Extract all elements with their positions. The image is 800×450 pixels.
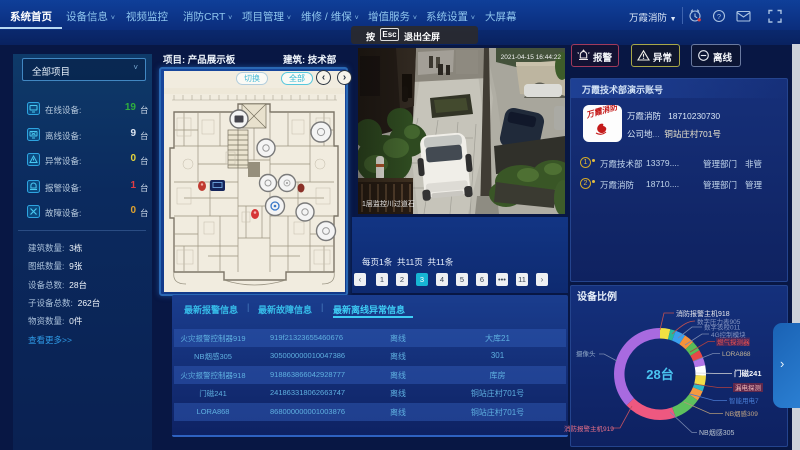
svg-text:?: ? (717, 12, 721, 21)
svg-text:摄像头: 摄像头 (576, 349, 596, 358)
svg-text:智能用电7: 智能用电7 (729, 396, 759, 405)
svg-text:漏电探测: 漏电探测 (735, 383, 762, 392)
svg-text:消防报警主机918: 消防报警主机918 (676, 309, 730, 318)
svg-text:2021-04-15 16:44:22: 2021-04-15 16:44:22 (501, 54, 562, 61)
svg-text:1层监控川过道石: 1层监控川过道石 (362, 199, 415, 208)
svg-text:燃气探测器: 燃气探测器 (717, 338, 750, 347)
svg-text:NB烟感305: NB烟感305 (699, 428, 735, 437)
svg-text:万霞消防: 万霞消防 (584, 105, 620, 120)
svg-text:门磁241: 门磁241 (734, 368, 762, 378)
svg-text:消防报警主机919: 消防报警主机919 (564, 424, 614, 433)
svg-text:NB烟感309: NB烟感309 (725, 409, 758, 418)
svg-text:数字表校011: 数字表校011 (704, 323, 741, 332)
svg-text:28台: 28台 (646, 367, 673, 382)
svg-text:LORA868: LORA868 (722, 351, 751, 358)
